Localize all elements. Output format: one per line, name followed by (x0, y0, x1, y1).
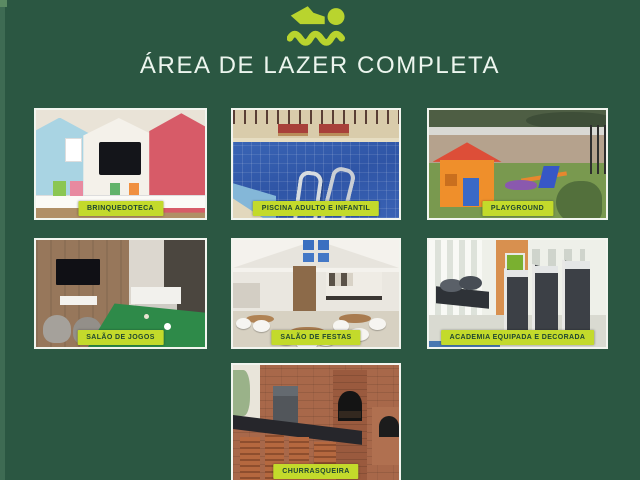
photo-card-churrasqueira: CHURRASQUEIRA (231, 363, 401, 480)
playhouse-window (445, 174, 457, 186)
wall-top (429, 127, 606, 135)
fence (590, 125, 606, 174)
photo-card-brinquedoteca: BRINQUEDOTECA (34, 108, 207, 220)
pouf-stool (43, 315, 72, 343)
shelf (60, 296, 97, 306)
photo-label-badge: BRINQUEDOTECA (78, 201, 163, 216)
page-title: ÁREA DE LAZER COMPLETA (0, 52, 640, 80)
photo-label-badge: SALÃO DE JOGOS (77, 330, 164, 345)
skylight (318, 240, 330, 250)
treadmill-console (507, 270, 528, 277)
playhouse-door (463, 178, 479, 206)
photo-card-academia: ACADEMIA EQUIPADA E DECORADA (427, 238, 608, 349)
pool-edge (233, 138, 399, 142)
toy (110, 183, 120, 195)
skylight (303, 240, 315, 250)
photo-card-salao-de-festas: SALÃO DE FESTAS (231, 238, 401, 349)
railing (233, 110, 399, 124)
treadmill-console (535, 266, 558, 273)
treadmill (507, 269, 528, 337)
greenery (233, 370, 250, 416)
tv-screen (56, 259, 100, 285)
chair (253, 320, 270, 332)
bush (556, 181, 602, 218)
photo-card-playground: PLAYGROUND (427, 108, 608, 220)
foosball-table (131, 287, 182, 304)
treadmill (535, 265, 558, 338)
skylight (318, 253, 330, 263)
photo-label-badge: CHURRASQUEIRA (273, 464, 358, 479)
photo-label-badge: PLAYGROUND (482, 201, 553, 216)
kitchen-cabinet (329, 273, 352, 286)
top-left-corner-accent (0, 0, 7, 7)
rocking-boat (505, 180, 537, 190)
chair (236, 318, 251, 329)
pizza-oven-mouth (379, 416, 399, 437)
skylight (303, 253, 315, 263)
photo-card-piscina: PISCINA ADULTO E INFANTIL (231, 108, 401, 220)
lounge-chair (278, 124, 308, 133)
chair (369, 318, 386, 330)
treadmill-console (565, 261, 590, 268)
treadmill (565, 260, 590, 340)
photo-label-badge: ACADEMIA EQUIPADA E DECORADA (441, 330, 595, 345)
lounge-chair (319, 124, 349, 133)
bar-stool (240, 437, 260, 480)
wood-column (293, 266, 316, 315)
bbq-area-photo (233, 365, 399, 480)
sofa (233, 283, 260, 309)
swimmer-icon (287, 4, 353, 48)
photo-card-salao-de-jogos: SALÃO DE JOGOS (34, 238, 207, 349)
toy (129, 183, 139, 195)
toy-box (70, 181, 84, 196)
photo-label-badge: SALÃO DE FESTAS (271, 330, 360, 345)
tv-screen (99, 142, 141, 174)
wall-picture (65, 138, 82, 162)
photo-label-badge: PISCINA ADULTO E INFANTIL (253, 201, 379, 216)
leisure-area-flyer: ÁREA DE LAZER COMPLETA BRINQUEDOTECA (0, 0, 640, 480)
grill-rack (339, 411, 361, 418)
toy-box (53, 181, 67, 196)
